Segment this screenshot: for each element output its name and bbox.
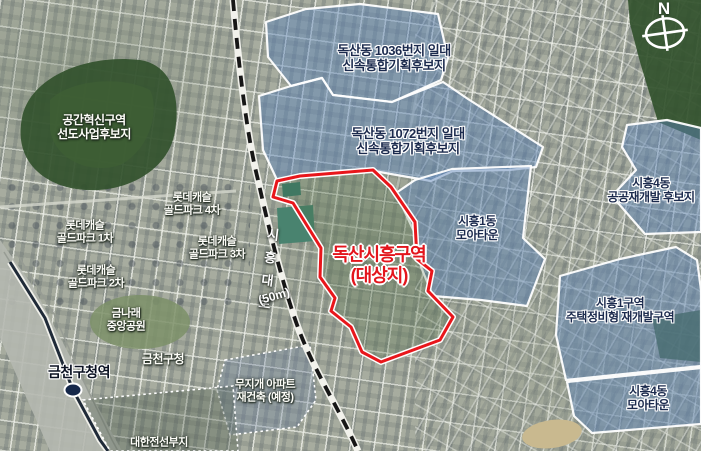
- school-field-tan: [520, 416, 583, 451]
- label-zone-siheung1dong-moatown: 시흥1동 모아타운: [456, 215, 498, 243]
- label-mujigae-apartment: 무지개 아파트 재건축 (예정): [235, 378, 295, 403]
- label-geumnarae-park: 금나래 중앙공원: [107, 307, 145, 332]
- label-gonggan-innovation: 공간혁신구역 선도사업후보지: [57, 114, 131, 142]
- label-zone-siheung1-redevelopment: 시흥1구역 주택정비형 재개발구역: [566, 297, 674, 325]
- label-target-zone: 독산시흥구역 (대상지): [332, 244, 425, 285]
- label-lotte-goldpark-4: 롯데캐슬 골드파크 4차: [164, 191, 220, 216]
- label-zone-doksan-1072: 독산동 1072번지 일대 신속통합기획후보지: [351, 127, 464, 157]
- satellite-map: N 독산동 1036번지 일대 신속통합기획후보지 독산동 1072번지 일대 …: [0, 0, 701, 451]
- station-marker: [65, 384, 82, 397]
- label-zone-doksan-1036: 독산동 1036번지 일대 신속통합기획후보지: [337, 44, 450, 74]
- label-geumcheon-gu-office-station: 금천구청역: [48, 364, 110, 380]
- label-daehan-cable-site: 대한전선부지: [130, 437, 188, 450]
- label-zone-siheung4dong-moatown: 시흥4동 모아타운: [627, 385, 669, 413]
- label-lotte-goldpark-2: 롯데캐슬 골드파크 2차: [68, 264, 124, 289]
- label-lotte-goldpark-1: 롯데캐슬 골드파크 1차: [57, 219, 113, 244]
- label-lotte-goldpark-3: 롯데캐슬 골드파크 3차: [189, 235, 245, 260]
- compass-north-label: N: [658, 0, 670, 19]
- label-zone-siheung4dong-public: 시흥4동 공공재개발 후보지: [607, 177, 694, 205]
- label-geumcheon-gu-office: 금천구청: [142, 353, 184, 367]
